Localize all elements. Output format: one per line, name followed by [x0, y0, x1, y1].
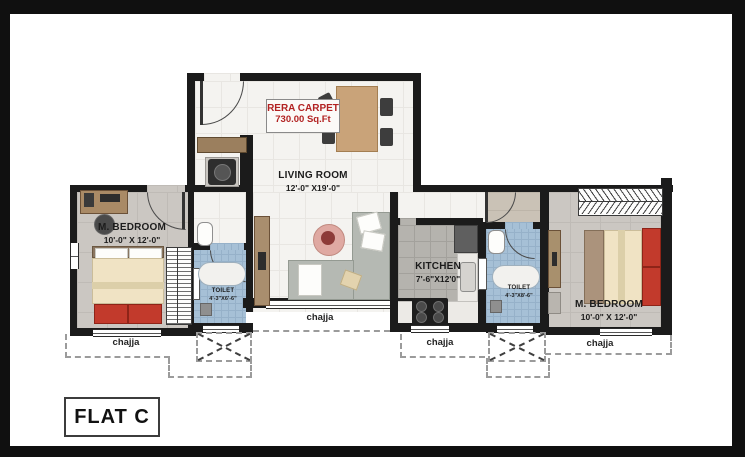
rera-title: RERA CARPET: [267, 103, 339, 114]
kitchen-opening: [400, 218, 416, 225]
chajja-ext-left: [168, 358, 252, 378]
living-room-name: LIVING ROOM: [253, 170, 373, 183]
toilet-right-dims: 4'-3"X8'-6": [492, 293, 546, 300]
kitchen-name: KITCHEN: [396, 261, 480, 274]
bed-right-pillows: [584, 230, 604, 304]
toilet-left-label: TOILET 4'-3"X6'-6": [196, 288, 250, 302]
toilet-right-label: TOILET 4'-3"X8'-6": [492, 285, 546, 299]
wardrobe-left-divider: [177, 247, 178, 323]
dining-chair: [380, 98, 393, 116]
shower-left: [200, 303, 212, 316]
rera-area: 730.00 Sq.Ft: [267, 114, 339, 125]
wall-foyer-left: [187, 73, 195, 192]
bedroom-left-door-leaf: [182, 192, 185, 229]
bed-left-mattress: [92, 258, 164, 304]
lobby-door-leaf: [485, 192, 488, 222]
desk-keyboard: [100, 194, 120, 202]
stove: [412, 298, 448, 325]
toilet2-door-opening: [505, 222, 533, 229]
toilet1-door-opening: [210, 243, 244, 250]
bench-split: [127, 304, 129, 324]
desk-item: [84, 193, 94, 207]
bedroom-right-label: M. BEDROOM 10'-0" X 12'-0": [559, 299, 659, 322]
dining-table: [336, 86, 378, 152]
bedroom-right-name: M. BEDROOM: [559, 299, 659, 312]
shower-right: [490, 300, 502, 313]
chajja-label-right: chajja: [560, 338, 640, 349]
sliding-panel-handle: [552, 252, 557, 266]
window-living: [266, 300, 390, 309]
washing-machine-door-icon: [214, 164, 231, 181]
bedroom-right-dims: 10'-0" X 12'-0": [559, 312, 659, 323]
chajja-label-center: chajja: [280, 312, 360, 323]
entrance-door-leaf: [200, 81, 203, 125]
toilet-right-name: TOILET: [492, 285, 546, 293]
kitchen-dims: 7'-6"X12'0": [396, 274, 480, 285]
kitchen-label: KITCHEN 7'-6"X12'0": [396, 261, 480, 284]
washbasin-right: [488, 230, 505, 254]
bed-right-fold: [618, 230, 625, 304]
wardrobe-right: [578, 188, 663, 216]
chajja-label-kitchen: chajja: [400, 337, 480, 348]
window-left: [70, 243, 79, 269]
wall-upper-right: [413, 73, 421, 192]
entrance-opening: [204, 73, 240, 81]
bathtub-left: [198, 262, 246, 286]
bed-left-blanket-fold: [92, 282, 164, 289]
window-kitchen: [411, 325, 449, 333]
chajja-ext-right: [486, 358, 550, 378]
tv-screen: [258, 252, 266, 270]
bedroom-left-name: M. BEDROOM: [82, 222, 182, 235]
dining-chair: [380, 128, 393, 146]
bedroom-left-dims: 10'-0" X 12'-0": [82, 235, 182, 246]
rera-carpet-box: RERA CARPET 730.00 Sq.Ft: [266, 99, 340, 133]
sofa-throw: [298, 264, 322, 296]
plan-canvas: RERA CARPET 730.00 Sq.Ft LIVING ROOM 12'…: [10, 14, 732, 446]
toilet-left-dims: 4'-3"X6'-6": [196, 296, 250, 303]
washbasin-left: [197, 222, 213, 246]
living-room-label: LIVING ROOM 12'-0" X19'-0": [253, 170, 373, 193]
bedl-door-opening: [147, 185, 185, 192]
floor-plan-page: RERA CARPET 730.00 Sq.Ft LIVING ROOM 12'…: [0, 0, 745, 457]
living-room-dims: 12'-0" X19'-0": [253, 183, 373, 194]
kitchen-counter-dark: [454, 225, 478, 253]
flat-title: FLAT C: [74, 406, 150, 429]
wardrobe-left: [166, 247, 192, 325]
bedroom-left-label: M. BEDROOM 10'-0" X 12'-0": [82, 222, 182, 245]
toilet-left-name: TOILET: [196, 288, 250, 296]
bench-split-right: [642, 266, 661, 268]
wall-living-kitchen: [390, 192, 398, 327]
coffee-table-decor: [321, 231, 335, 245]
sofa-cushion: [361, 230, 386, 252]
flat-title-box: FLAT C: [64, 397, 160, 437]
shoe-console: [197, 137, 247, 153]
chajja-label-left: chajja: [86, 337, 166, 348]
